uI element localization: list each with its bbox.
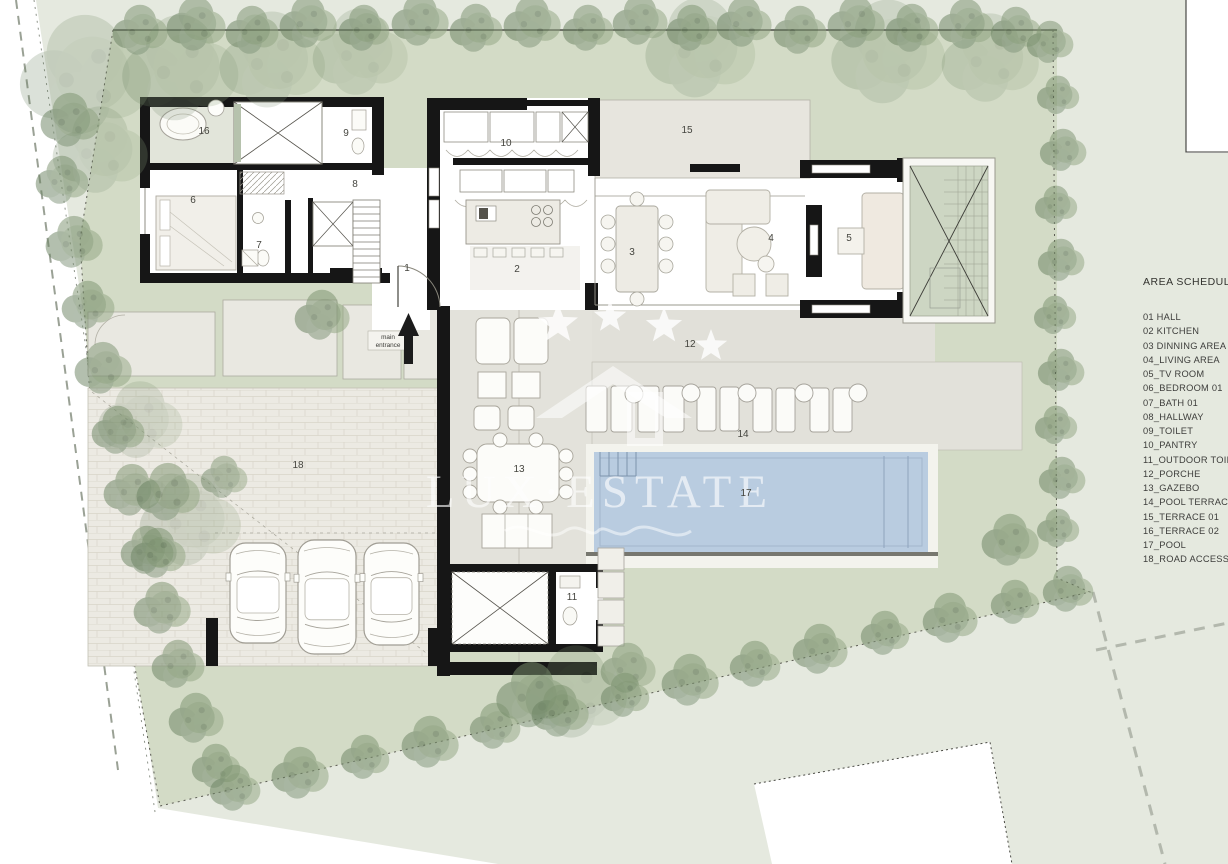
garden-wall-1: [206, 618, 218, 666]
room-number-label: 5: [846, 233, 852, 244]
legend-item: 14_POOL TERRACE: [1143, 495, 1228, 509]
car-icon: [294, 540, 360, 654]
room-number-label: 12: [684, 339, 696, 350]
room-number-label: 17: [740, 488, 752, 499]
room-number-label: 9: [343, 128, 349, 139]
site-plan-svg: main entrance LUX·ESTATE 123456789101112…: [0, 0, 1228, 864]
legend-item: 06_BEDROOM 01: [1143, 381, 1228, 395]
garden-steps: [598, 548, 624, 646]
legend-item: 17_POOL: [1143, 538, 1228, 552]
entrance-label-line1: main: [381, 334, 395, 341]
legend-item: 12_PORCHE: [1143, 467, 1228, 481]
legend-item: 05_TV ROOM: [1143, 367, 1228, 381]
neighbor-plot-edge-topright: [1186, 0, 1228, 152]
room-number-label: 8: [352, 179, 358, 190]
room-number-label: 6: [190, 195, 196, 206]
room-number-label: 11: [567, 592, 578, 603]
legend-item: 04_LIVING AREA: [1143, 353, 1228, 367]
legend-item: 03 DINNING AREA: [1143, 339, 1228, 353]
legend-item: 15_TERRACE 01: [1143, 510, 1228, 524]
pergola: [903, 158, 995, 323]
car-icon: [360, 543, 423, 645]
entrance-label-line2: entrance: [376, 342, 401, 349]
room-number-label: 15: [681, 125, 693, 136]
legend-item: 18_ROAD ACCESS: [1143, 552, 1228, 566]
room-number-label: 4: [768, 233, 774, 244]
legend-item: 02 KITCHEN: [1143, 324, 1228, 338]
cars-layer: [226, 540, 423, 654]
room-number-label: 10: [500, 138, 512, 149]
room-number-label: 3: [629, 247, 635, 258]
car-icon: [226, 543, 290, 643]
pool-coping-shadow: [586, 552, 938, 556]
room-number-label: 2: [514, 264, 520, 275]
legend-title: AREA SCHEDULE: [1143, 276, 1228, 288]
legend-item: 07_BATH 01: [1143, 396, 1228, 410]
legend-items: 01 HALL02 KITCHEN03 DINNING AREA04_LIVIN…: [1143, 310, 1228, 567]
hall-floor: [372, 168, 430, 330]
legend-item: 08_HALLWAY: [1143, 410, 1228, 424]
area-schedule-legend: AREA SCHEDULE 01 HALL02 KITCHEN03 DINNIN…: [1143, 276, 1228, 567]
legend-item: 16_TERRACE 02: [1143, 524, 1228, 538]
room-number-label: 7: [256, 240, 262, 251]
room-number-label: 13: [513, 464, 525, 475]
legend-item: 09_TOILET: [1143, 424, 1228, 438]
legend-item: 10_PANTRY: [1143, 438, 1228, 452]
outdoor-toilet-block: [443, 564, 603, 652]
bedroom-furniture: [156, 196, 236, 270]
legend-item: 01 HALL: [1143, 310, 1228, 324]
room-number-label: 1: [404, 263, 410, 274]
room-number-label: 16: [198, 126, 210, 137]
site-plan-page: main entrance LUX·ESTATE 123456789101112…: [0, 0, 1228, 864]
legend-item: 13_GAZEBO: [1143, 481, 1228, 495]
room-number-label: 18: [292, 460, 304, 471]
room-number-label: 14: [737, 429, 749, 440]
legend-item: 11_OUTDOOR TOILET: [1143, 453, 1228, 467]
watermark-brand-text: LUX·ESTATE: [426, 466, 774, 518]
stairs: [353, 200, 380, 283]
